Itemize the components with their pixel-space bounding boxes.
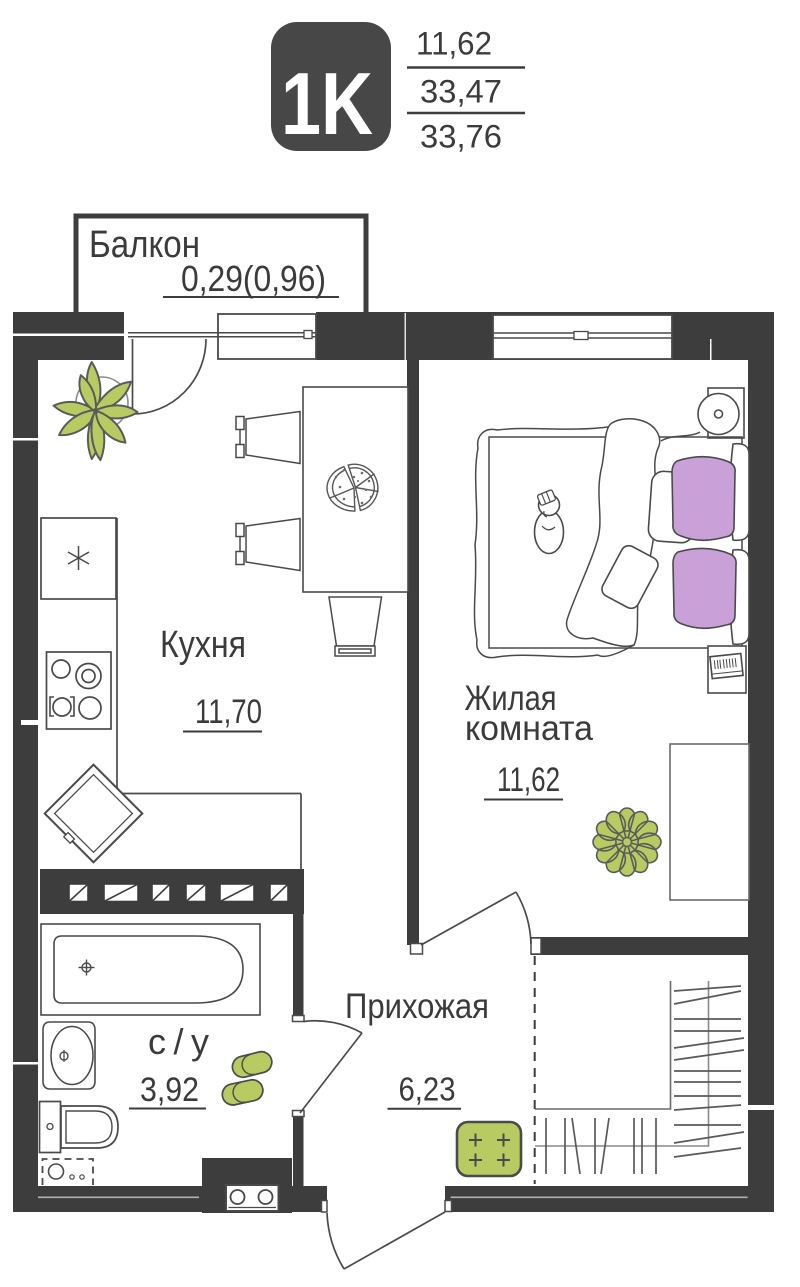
svg-text:Прихожая: Прихожая	[345, 987, 489, 1026]
svg-text:33,76: 33,76	[420, 119, 502, 155]
svg-text:3,92: 3,92	[140, 1071, 199, 1109]
svg-text:комната: комната	[465, 709, 594, 748]
svg-text:6,23: 6,23	[399, 1071, 456, 1108]
svg-text:Кухня: Кухня	[160, 624, 246, 666]
svg-text:1K: 1K	[281, 54, 373, 153]
svg-text:0,29(0,96): 0,29(0,96)	[181, 258, 326, 299]
svg-text:33,47: 33,47	[420, 74, 502, 110]
svg-text:с/у: с/у	[148, 1021, 209, 1062]
svg-text:11,70: 11,70	[195, 693, 262, 731]
svg-text:11,62: 11,62	[416, 26, 492, 62]
svg-text:11,62: 11,62	[497, 761, 560, 799]
